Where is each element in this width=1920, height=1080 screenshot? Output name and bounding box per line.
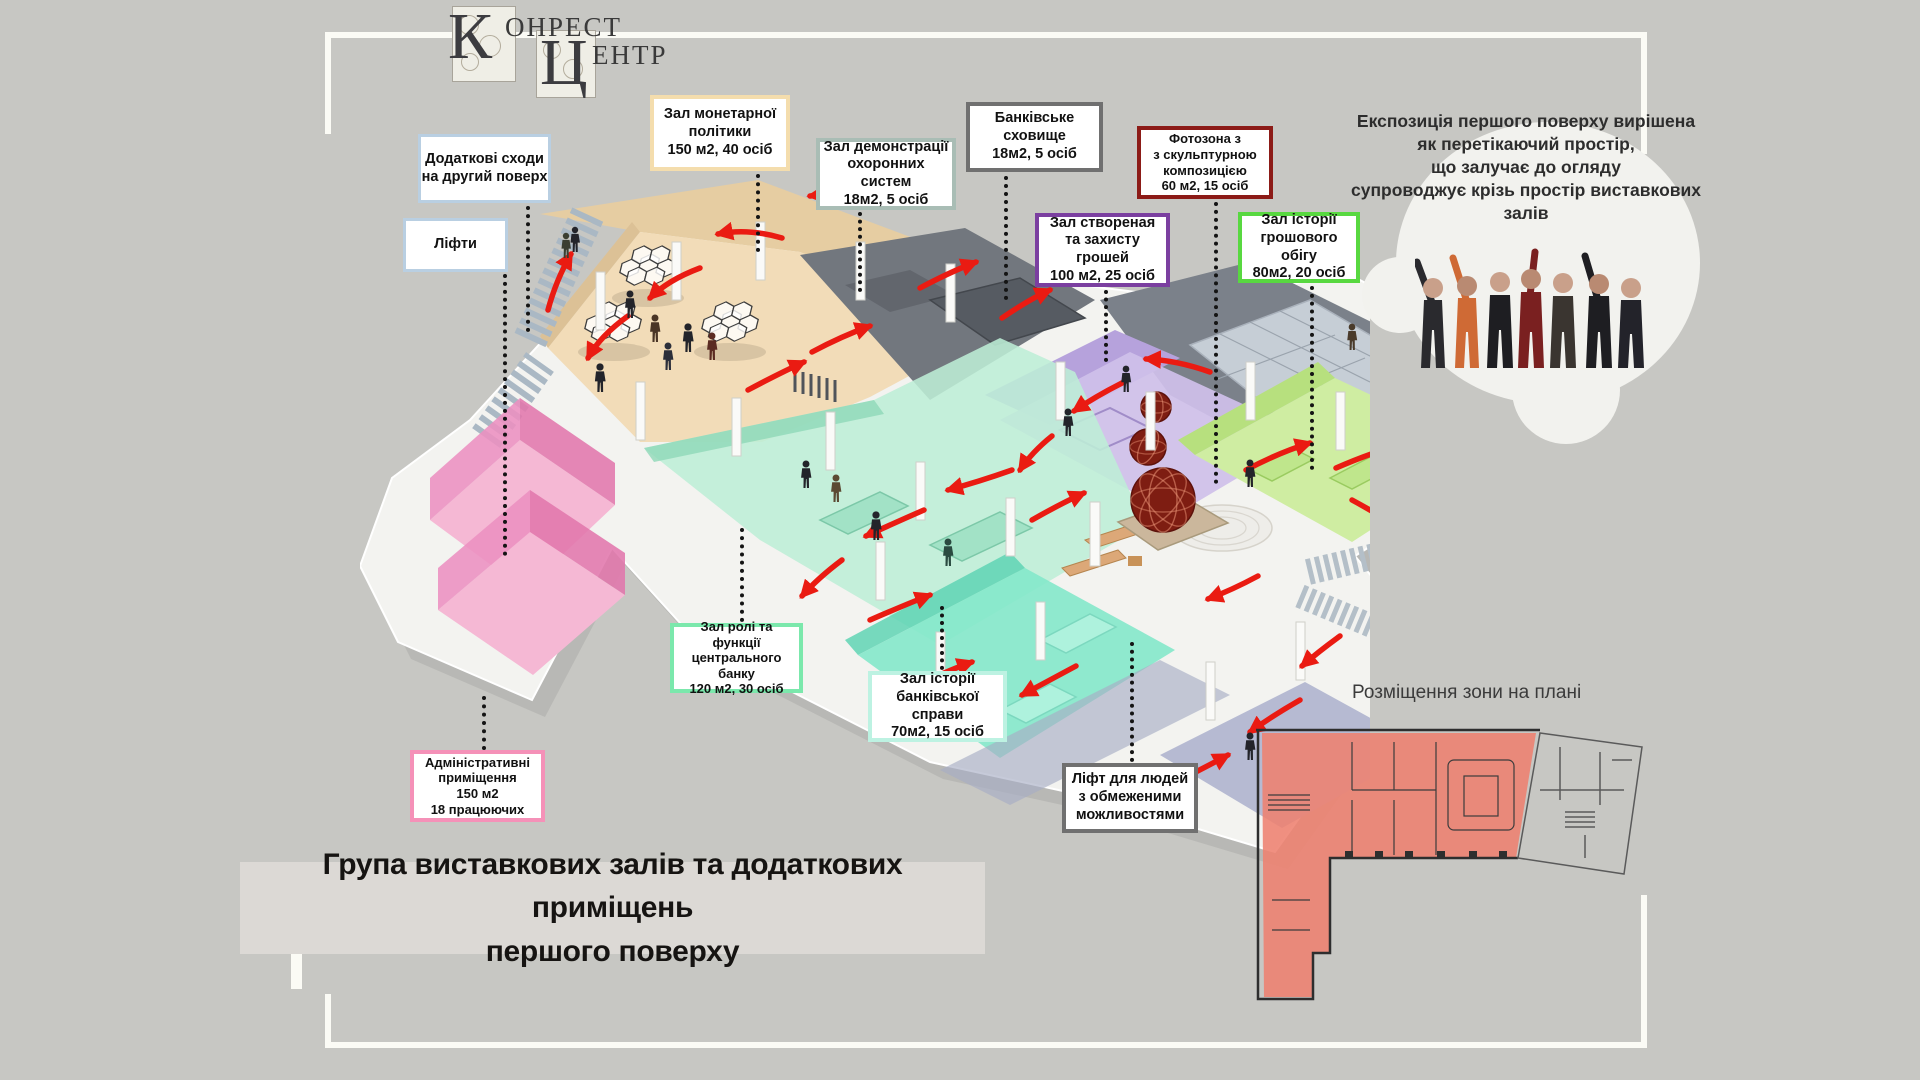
leader-photo-zone [1214, 202, 1218, 484]
slide: { "background_color": "#c7c7c3", "logo":… [0, 0, 1920, 1080]
callout-admin-rooms: Адміністративні приміщення 150 м2 18 пра… [410, 750, 545, 822]
leader-security [858, 212, 862, 292]
callout-extra-stairs: Додаткові сходи на другий поверх [418, 134, 551, 203]
photo-person [1618, 278, 1644, 368]
logo-letter-ts: Ц [540, 30, 588, 96]
leader-accessible-lift [1130, 642, 1134, 762]
leader-extra-stairs [526, 206, 530, 332]
photo-person [1417, 262, 1445, 368]
exposition-description: Експозиція першого поверху вирішена як п… [1348, 110, 1704, 225]
callout-central-bank-hall: Зал ролі та функції центрального банку 1… [670, 623, 803, 693]
logo-letter-k: К [448, 4, 492, 70]
photo-person [1518, 252, 1544, 368]
photo-person [1487, 272, 1513, 368]
leader-vault [1004, 176, 1008, 300]
photo-person [1550, 273, 1576, 368]
frame-line-left-bottom [325, 994, 331, 1048]
highlighted-zone [1262, 733, 1536, 997]
photo-person [1453, 258, 1479, 368]
leader-lifts [503, 274, 507, 556]
photo-person [1585, 256, 1612, 368]
plan-section-label: Розміщення зони на плані [1352, 682, 1581, 704]
frame-line-bottom [325, 1042, 1647, 1048]
callout-money-creation-hall: Зал створеная та захисту грошей 100 м2, … [1035, 213, 1170, 287]
callout-security-hall: Зал демонстрації охоронних систем 18м2, … [816, 138, 956, 210]
leader-money-creation [1104, 290, 1108, 362]
leader-money-circulation [1310, 286, 1314, 470]
callout-lifts: Ліфти [403, 218, 508, 272]
callout-accessible-lift: Ліфт для людей з обмеженими можливостями [1062, 763, 1198, 833]
logo-word-bottom: ЕНТР [592, 40, 668, 71]
callout-banking-history-hall: Зал історії банківської справи 70м2, 15 … [868, 671, 1007, 742]
frame-line-left-top [325, 32, 331, 134]
slide-title: Група виставкових залів та додаткових пр… [240, 843, 985, 974]
leader-admin [482, 696, 486, 750]
visitors-photo [1415, 200, 1650, 370]
floor-plan-2d [1248, 718, 1668, 1018]
callout-bank-vault: Банківське сховище 18м2, 5 осіб [966, 102, 1103, 172]
callout-money-circulation-hall: Зал історії грошового обігу 80м2, 20 осі… [1238, 212, 1360, 283]
callout-monetary-hall: Зал монетарної політики 150 м2, 40 осіб [650, 95, 790, 171]
leader-banking-history [940, 606, 944, 670]
leader-monetary [756, 174, 760, 252]
leader-central-bank [740, 528, 744, 622]
slide-title-band: Група виставкових залів та додаткових пр… [240, 862, 985, 954]
congress-center-logo: К ОНРЕСТ Ц ЕНТР [435, 0, 695, 95]
plan-right-wing [1518, 733, 1642, 874]
callout-photo-zone: Фотозона з з скульптурною композицією 60… [1137, 126, 1273, 199]
